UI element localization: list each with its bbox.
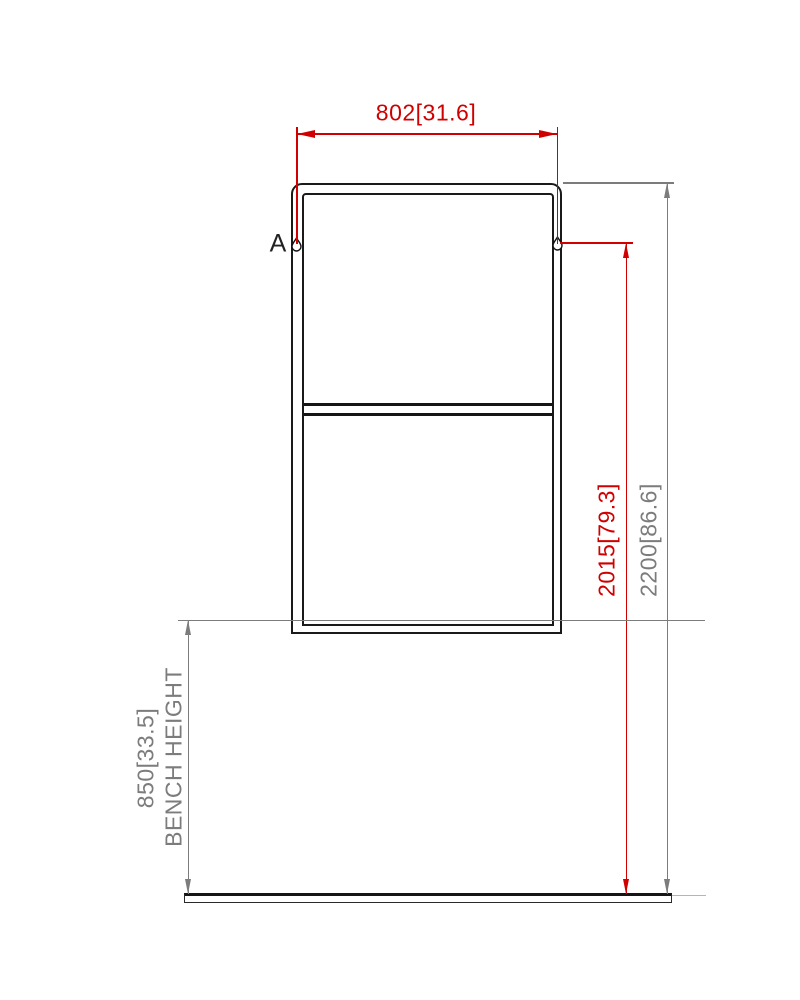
floor-line [184,893,672,903]
floor-extension-line [672,895,706,897]
arrow-down-icon [623,879,629,894]
bench-height-caption: BENCH HEIGHT [163,667,186,847]
arrow-down-icon [185,879,191,894]
dimension-keyhole-height-label: 2015[79.3] [596,483,619,597]
arrow-up-icon [664,183,670,198]
dimension-bench-height-label: 850[33.5] [135,708,158,808]
dimension-line [667,183,669,894]
extension-line [557,127,559,244]
arrow-up-icon [623,243,629,258]
dimension-line [297,133,557,135]
dimension-line [626,243,628,894]
extension-line [296,127,298,244]
dimension-line [188,620,190,894]
dimension-width-label: 802[31.6] [376,102,476,125]
extension-line [178,620,705,622]
arrow-up-icon [185,620,191,635]
arrow-down-icon [664,879,670,894]
frame-crossbar [304,403,552,416]
arrow-right-icon [539,130,557,138]
extension-line [563,182,674,184]
dimension-overall-height-label: 2200[86.6] [638,483,661,597]
technical-drawing-canvas: A 802[31.6] 2015[79.3] 2200[86.6] 850[33… [0,0,800,1000]
arrow-left-icon [297,130,315,138]
detail-callout-a: A [270,232,287,257]
